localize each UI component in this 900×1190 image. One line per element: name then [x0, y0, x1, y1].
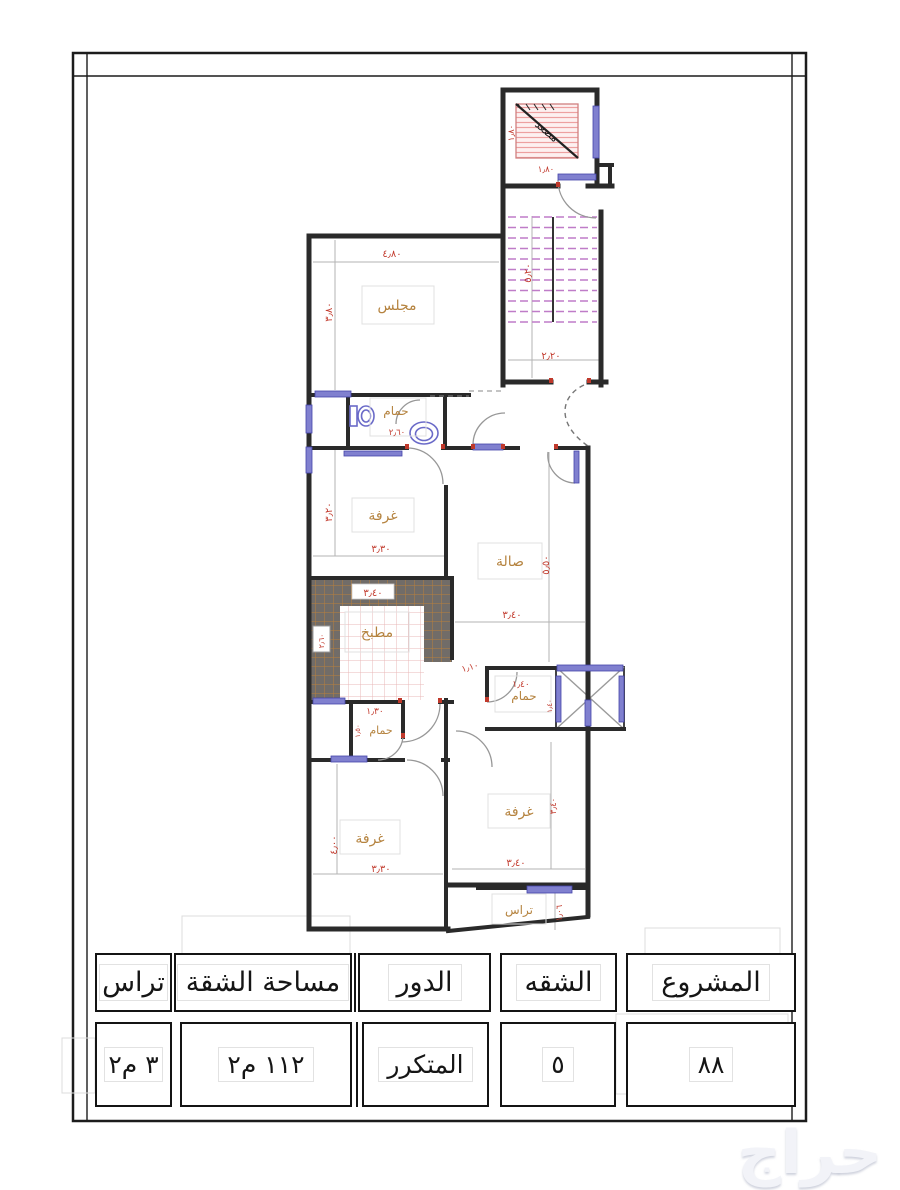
terrace-height-dim: ١٫٠٦ — [555, 904, 565, 921]
table-header-floor-text: الدور — [388, 964, 462, 1001]
hall-label: صالة — [496, 554, 524, 570]
table-header-terrace-text: تراس — [99, 964, 168, 1001]
floor-plan-page: مجلس حمام غرفة صالة مطبخ حمام حمام غرفة … — [0, 0, 900, 1190]
hall-height-dim: ٥٫٥٠ — [541, 555, 552, 574]
kitchen-opening-dim: ١٫١٠ — [461, 661, 480, 675]
table-header-terrace: تراس — [95, 953, 172, 1012]
kitchen-bottom-dim: ١٫٣٠ — [366, 707, 383, 717]
bathroom-top-label: حمام — [383, 404, 408, 418]
table-header-area-text: مساحة الشقة — [177, 964, 349, 1001]
stairs-width-dim: ٢٫٢٠ — [541, 351, 560, 362]
kitchen-height-dim: ٢٫٦٠ — [317, 634, 326, 649]
table-header-project-text: المشروع — [652, 964, 769, 1001]
windows-and-door-leaves — [306, 106, 624, 893]
elevator-width-dim: ١٫٨٠ — [538, 165, 554, 175]
bedroom-right-label: غرفة — [504, 804, 533, 820]
majlis-width-dim: ٤٫٨٠ — [382, 249, 401, 260]
table-value-area-text: ١١٢ م٢ — [218, 1047, 313, 1082]
elevator-height-dim: ١٫٨٠ — [507, 125, 517, 141]
table-value-floor: المتكرر — [362, 1022, 489, 1107]
bathroom-low-label: حمام — [369, 724, 392, 737]
table-value-area: ١١٢ م٢ — [180, 1022, 352, 1107]
table-value-terrace-text: ٣ م٢ — [104, 1047, 162, 1082]
table-value-floor-text: المتكرر — [378, 1047, 472, 1082]
terrace-label: تراس — [505, 903, 533, 918]
guide-lines — [313, 216, 601, 930]
bedroom-left-height-dim: ٤٫٠٠ — [329, 835, 340, 854]
walls — [309, 90, 624, 931]
table-value-project: ٨٨ — [626, 1022, 796, 1107]
bathroom-mid-width-dim: ١٫٤٠ — [512, 680, 529, 690]
table-divider-line-2 — [356, 1022, 358, 1107]
bedroom-top-width-dim: ٣٫٣٠ — [371, 544, 390, 555]
table-header-project: المشروع — [626, 953, 796, 1012]
bedroom-top-label: غرفة — [368, 508, 397, 524]
haraj-watermark: حراج — [738, 1118, 882, 1188]
staircase — [508, 217, 597, 322]
bathroom-mid-height-dim: ١٫٤٠ — [546, 699, 554, 713]
bathroom-top-dim: ٢٫٦٠ — [389, 428, 405, 438]
majlis-label: مجلس — [377, 298, 416, 314]
table-header-apartment: الشقه — [500, 953, 617, 1012]
majlis-height-dim: ٣٫٨٠ — [324, 302, 335, 321]
kitchen-label: مطبخ — [361, 625, 393, 641]
bedroom-left-label: غرفة — [355, 831, 384, 847]
bedroom-top-height-dim: ٣٫٢٠ — [324, 502, 335, 521]
kitchen-width-dim: ٣٫٤٠ — [363, 588, 382, 599]
table-value-apartment: ٥ — [500, 1022, 616, 1107]
table-header-area: مساحة الشقة — [174, 953, 352, 1012]
table-value-terrace: ٣ م٢ — [95, 1022, 172, 1107]
bathroom-low-dim: ١٫٥٠ — [354, 724, 362, 738]
table-header-floor: الدور — [358, 953, 491, 1012]
bedroom-right-width-dim: ٣٫٤٠ — [506, 858, 525, 869]
table-value-apartment-text: ٥ — [542, 1047, 573, 1082]
stairs-height-dim: ٥٫٢٠ — [523, 263, 534, 282]
dimension-labels: ٤٫٨٠ ٣٫٨٠ ٢٫٦٠ ٣٫٣٠ ٣٫٢٠ ٥٫٥٠ ٣٫٤٠ ٣٫٤٠ … — [317, 125, 565, 921]
bedroom-left-width-dim: ٣٫٣٠ — [371, 864, 390, 875]
table-header-apartment-text: الشقه — [516, 964, 602, 1001]
hall-width-dim: ٣٫٤٠ — [502, 610, 521, 621]
bedroom-right-height-dim: ٣٫٤٠ — [549, 798, 559, 814]
bathroom-mid-label: حمام — [511, 689, 536, 703]
table-divider-line — [354, 953, 356, 1012]
sink-icon — [410, 422, 438, 444]
table-value-project-text: ٨٨ — [689, 1047, 734, 1082]
